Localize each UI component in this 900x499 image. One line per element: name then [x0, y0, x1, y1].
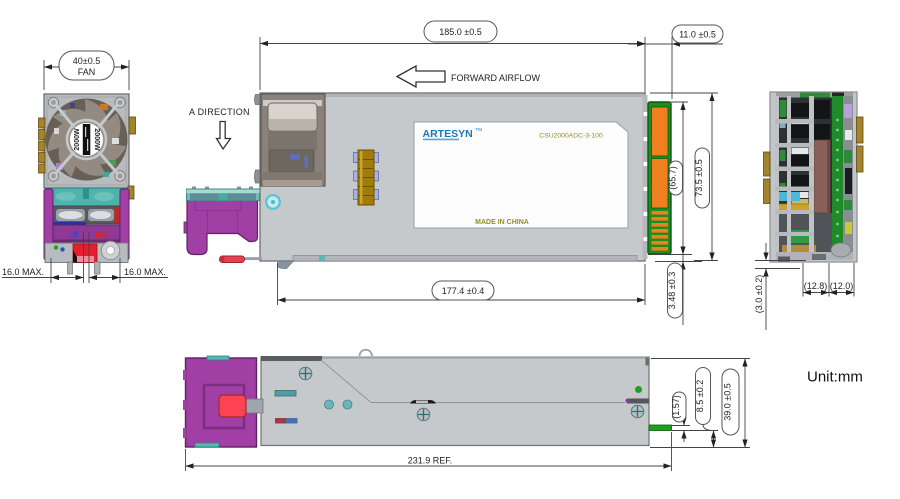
svg-text:16.0 MAX.: 16.0 MAX.: [2, 267, 44, 277]
svg-text:(65.7): (65.7): [668, 166, 678, 190]
svg-text:FORWARD AIRFLOW: FORWARD AIRFLOW: [451, 73, 541, 83]
svg-text:↓8: ↓8: [68, 230, 78, 241]
svg-text:(12.0): (12.0): [830, 281, 854, 291]
svg-text:(1.57): (1.57): [671, 395, 681, 419]
svg-text:231.9 REF.: 231.9 REF.: [408, 456, 453, 466]
svg-text:40±0.5: 40±0.5: [73, 56, 100, 66]
svg-text:A DIRECTION: A DIRECTION: [189, 107, 250, 117]
svg-text:FAN: FAN: [78, 67, 96, 77]
svg-text:185.0 ±0.5: 185.0 ±0.5: [439, 27, 481, 37]
svg-text:11.0 ±0.5: 11.0 ±0.5: [679, 30, 716, 40]
svg-text:(12.8): (12.8): [804, 281, 828, 291]
svg-text:TM: TM: [476, 127, 483, 132]
svg-text:8.5 ±0.2: 8.5 ±0.2: [695, 380, 705, 412]
svg-text:CSU2000ADC-3-100: CSU2000ADC-3-100: [539, 133, 603, 140]
svg-text:177.4 ±0.4: 177.4 ±0.4: [442, 286, 484, 296]
svg-text:Unit:mm: Unit:mm: [807, 369, 863, 386]
svg-text:39.0 ±0.5: 39.0 ±0.5: [723, 383, 733, 420]
svg-text:ARTESYN: ARTESYN: [423, 128, 473, 140]
svg-text:16.0 MAX.: 16.0 MAX.: [124, 267, 166, 277]
svg-text:2000W: 2000W: [93, 128, 100, 151]
svg-text:(3.0 ±0.2): (3.0 ±0.2): [754, 275, 764, 313]
svg-text:◆8: ◆8: [94, 230, 108, 241]
svg-text:3.48 ±0.3: 3.48 ±0.3: [667, 272, 677, 309]
svg-text:2000W: 2000W: [74, 128, 81, 151]
svg-text:73.5 ±0.5: 73.5 ±0.5: [694, 159, 704, 196]
svg-text:MADE IN CHINA: MADE IN CHINA: [475, 219, 529, 226]
